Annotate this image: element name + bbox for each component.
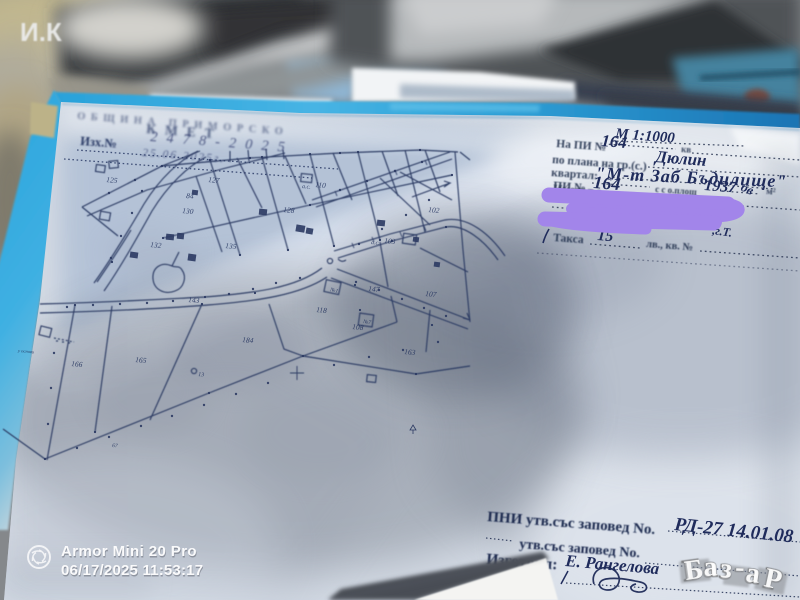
svg-text:06/17/2025 11:53:17: 06/17/2025 11:53:17: [61, 562, 203, 579]
svg-text:а.с.: а.с.: [371, 240, 380, 247]
svg-text:132: 132: [150, 240, 162, 250]
svg-text:Такса: Такса: [553, 232, 585, 246]
svg-text:1937: 1937: [704, 177, 738, 197]
svg-text:Изх.№: Изх.№: [80, 134, 118, 151]
svg-text:102: 102: [428, 205, 440, 215]
svg-text:128: 128: [283, 205, 295, 215]
svg-text:184: 184: [242, 335, 254, 345]
svg-text:67: 67: [112, 443, 118, 449]
svg-text:107: 107: [425, 289, 437, 299]
svg-text:13: 13: [198, 372, 205, 379]
svg-text:-: -: [735, 552, 745, 583]
svg-text:143: 143: [188, 295, 200, 305]
svg-text:а: а: [703, 551, 719, 583]
svg-text:147: 147: [368, 284, 380, 294]
svg-text:130: 130: [182, 206, 194, 216]
svg-text:а.с.: а.с.: [302, 184, 311, 191]
svg-text:,г.Т.: ,г.Т.: [711, 223, 734, 240]
svg-text:Armor Mini 20 Pro: Armor Mini 20 Pro: [61, 543, 197, 560]
svg-text:И.К: И.К: [20, 17, 62, 47]
svg-text:166: 166: [71, 359, 83, 369]
svg-text:135: 135: [225, 241, 237, 251]
svg-text:125: 125: [106, 175, 118, 185]
svg-text:164: 164: [601, 131, 628, 152]
svg-text:163: 163: [404, 347, 416, 357]
svg-text:127: 127: [208, 175, 220, 185]
svg-text:110: 110: [315, 180, 327, 190]
svg-text:84: 84: [186, 191, 195, 201]
svg-text:№7: №7: [362, 319, 372, 326]
svg-text:103: 103: [384, 236, 396, 246]
svg-text:118: 118: [316, 305, 328, 315]
svg-text:165: 165: [135, 355, 147, 365]
